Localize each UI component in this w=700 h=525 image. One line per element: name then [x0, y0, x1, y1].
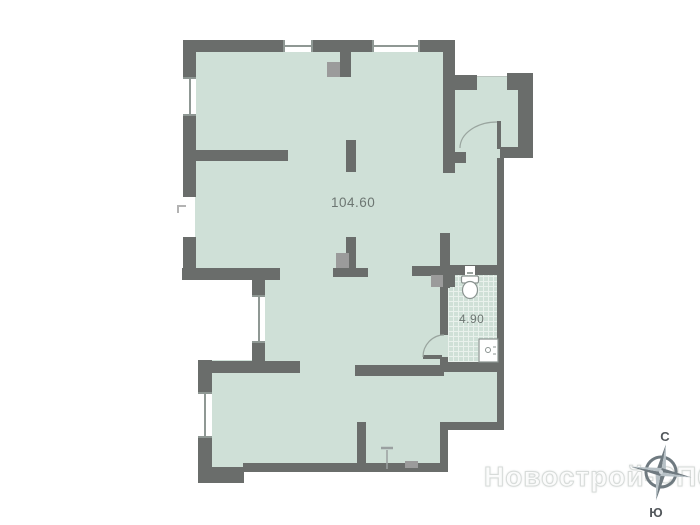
window [252, 295, 265, 343]
window [183, 77, 196, 116]
vent-shaft [336, 253, 349, 268]
wall-segment [455, 152, 466, 163]
wall-segment [500, 147, 533, 158]
wall-segment [440, 357, 448, 372]
wall-segment [448, 362, 504, 372]
area-label-main: 104.60 [331, 195, 375, 210]
wall-segment [443, 46, 455, 173]
entry-top-opening [475, 76, 507, 91]
compass-north-label: С [660, 429, 670, 444]
compass-south-label: Ю [649, 505, 662, 520]
area-label-bathroom: 4.90 [459, 312, 484, 326]
wall-segment [183, 116, 196, 197]
wall-segment [198, 360, 212, 392]
wall-segment [507, 73, 533, 90]
vent-shaft [327, 62, 340, 77]
wall-segment [183, 237, 196, 270]
wall-segment [340, 48, 351, 77]
bathroom-door-leaf [423, 355, 442, 359]
wall-segment [196, 150, 288, 161]
wall-segment [445, 75, 477, 90]
wall-segment [185, 40, 283, 52]
wall-segment [183, 40, 196, 77]
wall-segment [346, 140, 356, 172]
window [198, 392, 212, 438]
wall-segment [443, 274, 455, 287]
wall-segment [355, 365, 444, 376]
toilet-cistern-notch [465, 266, 475, 275]
wall-segment [198, 361, 300, 373]
wall-segment [357, 422, 366, 468]
window [283, 40, 313, 52]
vent-shaft [431, 275, 443, 287]
vent-shaft [405, 461, 418, 468]
wall-segment [252, 280, 265, 295]
floor-area-bottom [205, 360, 448, 470]
wall-segment [440, 288, 448, 335]
wall-segment [497, 158, 504, 428]
floorplan-image: 104.60 4.90 Новострой-СПб [0, 0, 700, 525]
wall-segment [445, 422, 504, 430]
watermark: Новострой-СПб [484, 461, 700, 493]
wall-segment [182, 268, 280, 280]
window [372, 40, 420, 52]
wall-segment [198, 467, 244, 483]
wall-segment [333, 268, 368, 277]
entrance-door-leaf [497, 121, 501, 149]
balcony-opening-mark [177, 207, 179, 213]
